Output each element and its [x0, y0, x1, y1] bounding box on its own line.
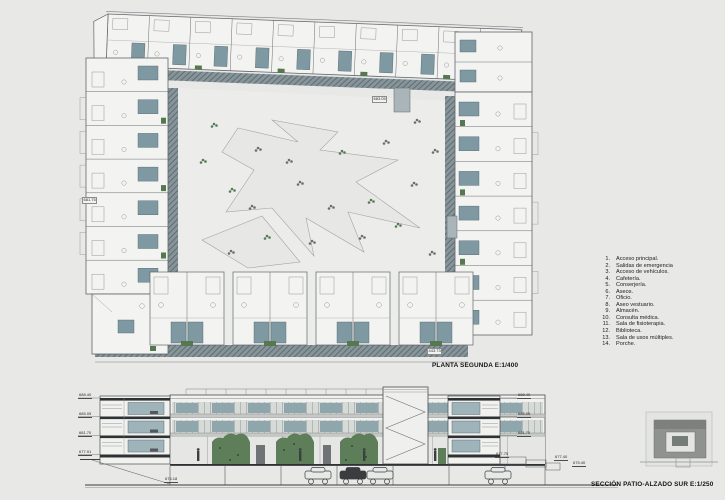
- key-plan: [640, 412, 718, 467]
- section-right-wing: [448, 396, 500, 464]
- section-left-wing: [100, 396, 170, 464]
- section-caption: SECCIÓN PATIO-ALZADO SUR E:1/250: [591, 481, 713, 488]
- plan-caption: PLANTA SEGUNDA E:1/400: [432, 362, 518, 369]
- level-label: 677.75: [495, 452, 509, 458]
- drawing-sheet: { "plan": { "caption": "PLANTA SEGUNDA E…: [0, 0, 725, 500]
- plan-left-wing: [80, 58, 168, 294]
- level-label: 688.40: [517, 393, 531, 399]
- legend-item: 14.Porche.: [597, 341, 725, 348]
- parked-cars: [305, 468, 511, 485]
- stair-tower: [383, 387, 428, 464]
- level-label: 683.05: [372, 96, 387, 103]
- legend: 1.Acceso principal.2.Salidas de emergenc…: [597, 256, 725, 348]
- floor-plan: [80, 11, 538, 362]
- level-label: 685.05: [517, 412, 531, 418]
- level-label: 677.40: [554, 455, 568, 461]
- level-label: 677.91: [78, 450, 92, 456]
- level-label: 443.73: [427, 348, 442, 355]
- sheet-canvas: [0, 0, 725, 500]
- section-drawing: [78, 387, 618, 488]
- level-label: 681.70: [517, 431, 531, 437]
- level-label: 681.75: [82, 197, 97, 204]
- level-label: 674.18: [164, 477, 178, 483]
- level-label: 688.40: [78, 393, 92, 399]
- level-label: 675.40: [572, 461, 586, 467]
- level-label: 685.05: [78, 412, 92, 418]
- legend-item-number: 14.: [597, 341, 610, 348]
- level-label: 681.70: [78, 431, 92, 437]
- legend-item-label: Porche.: [616, 341, 635, 348]
